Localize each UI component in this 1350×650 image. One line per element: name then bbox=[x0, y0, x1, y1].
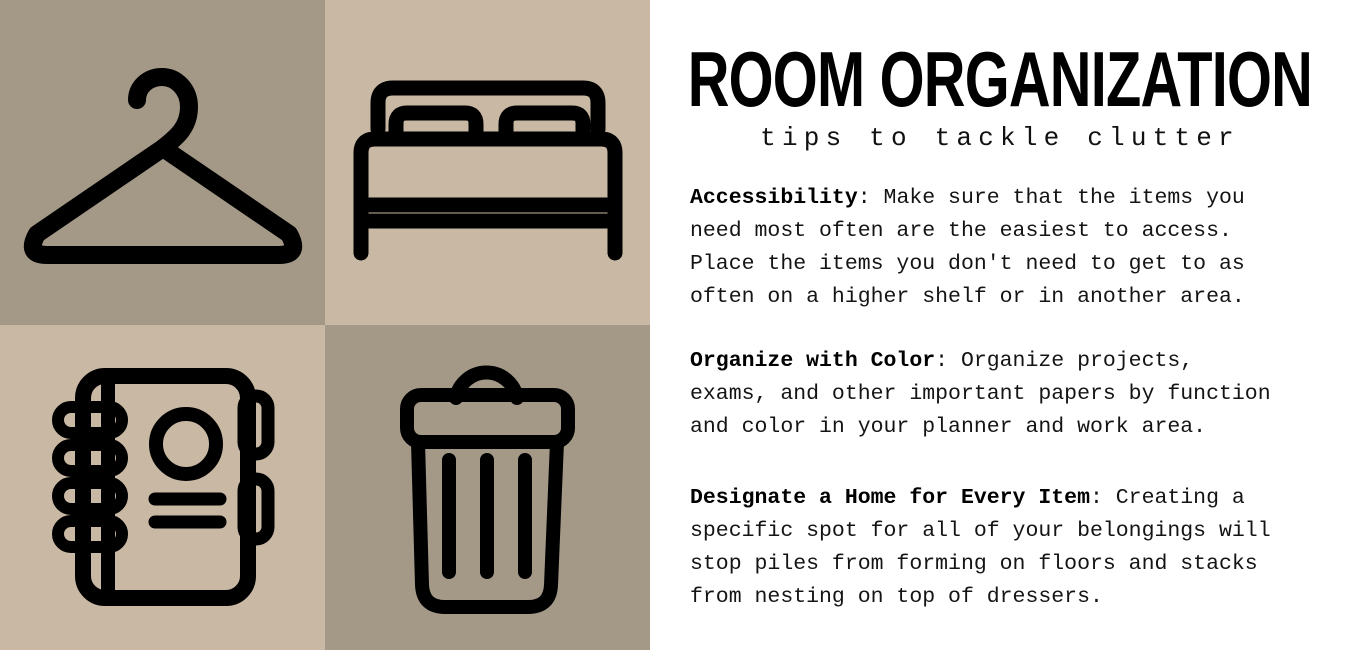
tip-heading: Accessibility bbox=[690, 186, 858, 210]
tile-notebook bbox=[0, 325, 325, 650]
trash-icon bbox=[395, 360, 580, 615]
tip-heading: Organize with Color bbox=[690, 349, 935, 373]
tip-organize-with-color: Organize with Color: Organize projects, … bbox=[690, 345, 1278, 444]
bed-icon bbox=[353, 63, 623, 263]
icon-grid bbox=[0, 0, 650, 650]
tile-hanger bbox=[0, 0, 325, 325]
page-title: ROOM ORGANIZATION bbox=[688, 40, 1312, 118]
hanger-icon bbox=[13, 48, 313, 278]
page-subtitle: tips to tackle clutter bbox=[650, 124, 1350, 152]
content-panel: ROOM ORGANIZATION tips to tackle clutter… bbox=[650, 0, 1350, 650]
tip-heading: Designate a Home for Every Item bbox=[690, 486, 1090, 510]
poster: ROOM ORGANIZATION tips to tackle clutter… bbox=[0, 0, 1350, 650]
title-row: ROOM ORGANIZATION bbox=[650, 40, 1350, 118]
notebook-icon bbox=[48, 363, 278, 613]
tile-bed bbox=[325, 0, 650, 325]
tips-list: Accessibility: Make sure that the items … bbox=[650, 182, 1350, 614]
tip-accessibility: Accessibility: Make sure that the items … bbox=[690, 182, 1278, 314]
tip-designate-a-home: Designate a Home for Every Item: Creatin… bbox=[690, 482, 1278, 614]
tile-trash bbox=[325, 325, 650, 650]
